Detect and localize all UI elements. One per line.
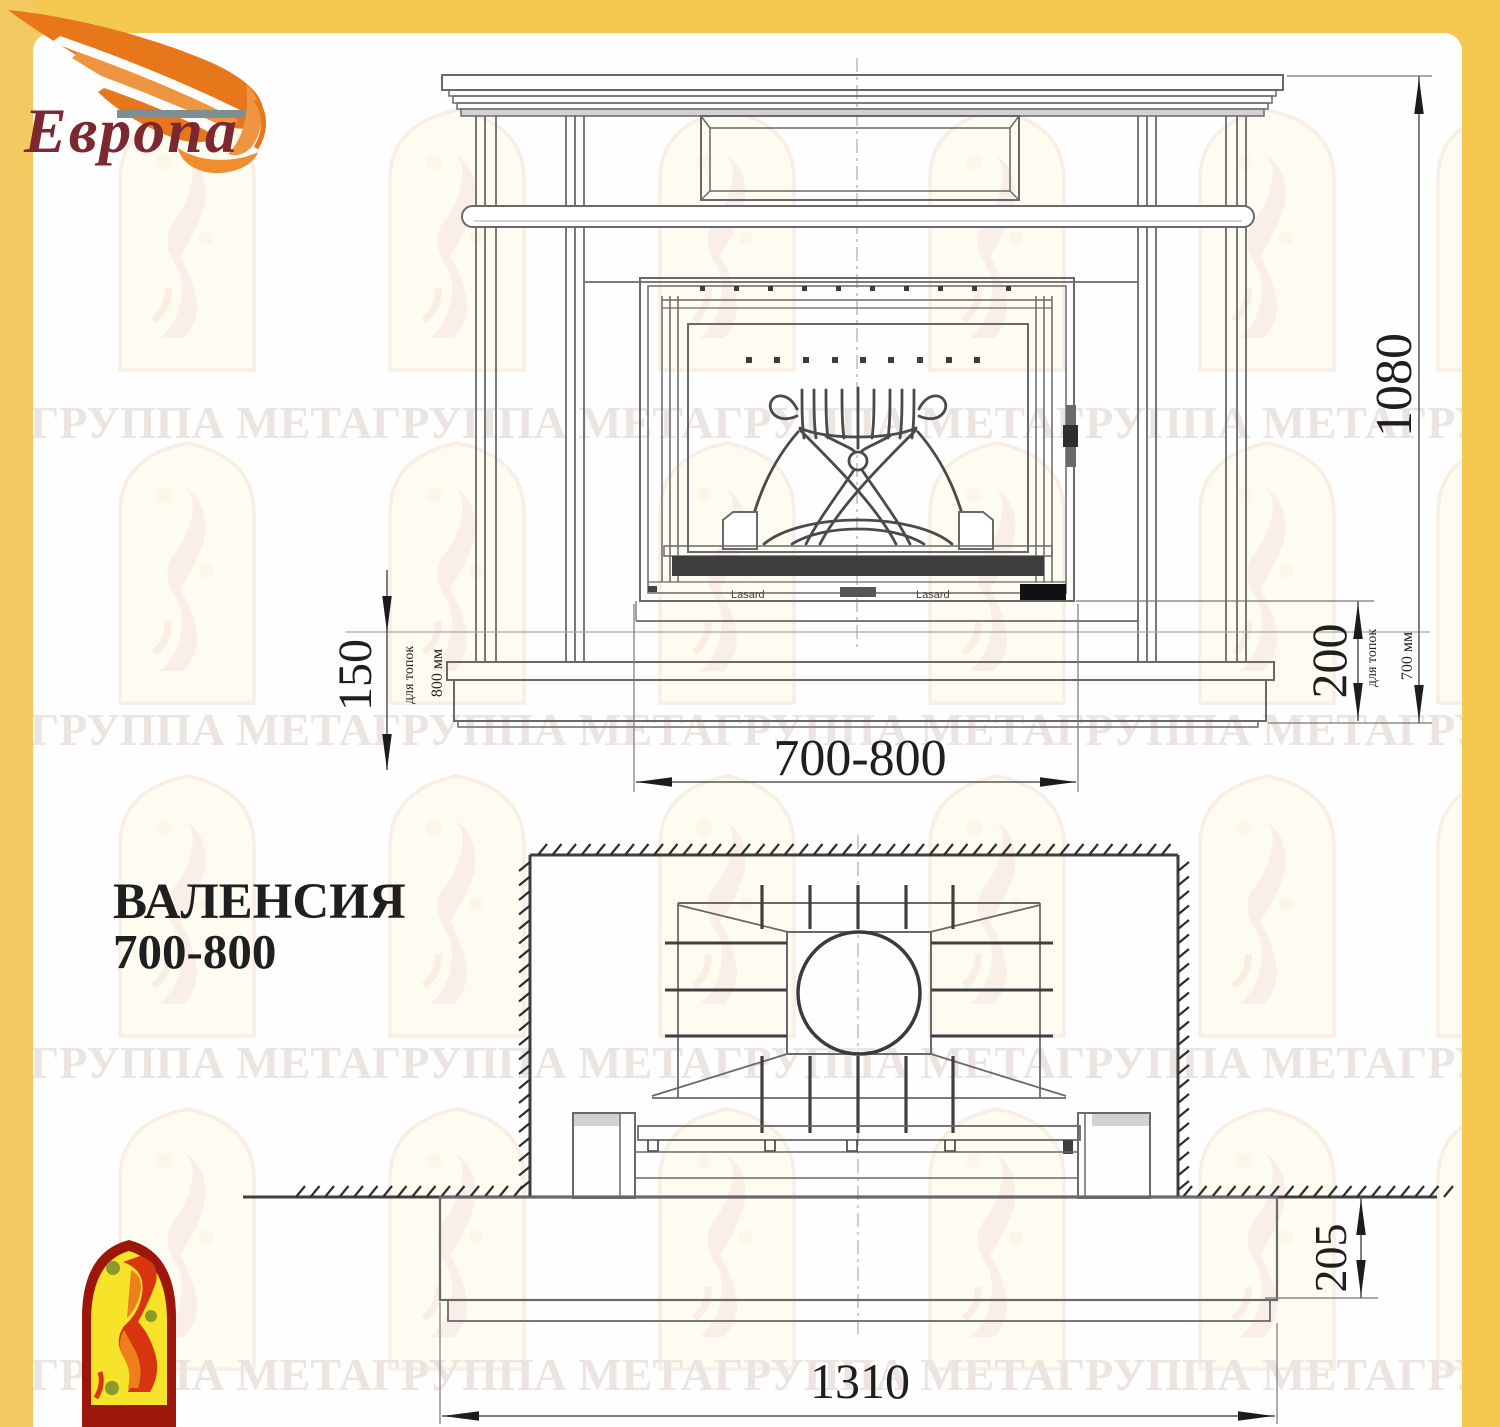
svg-text:1080: 1080 [1366,333,1423,437]
svg-text:700-800: 700-800 [773,730,946,787]
svg-text:Lasard: Lasard [731,589,765,601]
svg-text:ГРУППА МЕТАГРУППА МЕТАГРУППА М: ГРУППА МЕТАГРУППА МЕТАГРУППА МЕТАГРУППА … [30,704,1500,755]
svg-text:700-800: 700-800 [113,924,276,979]
svg-text:205: 205 [1305,1224,1356,1293]
svg-text:800 мм: 800 мм [429,649,446,697]
svg-text:для топок: для топок [1365,629,1380,687]
svg-text:ГРУППА МЕТАГРУППА МЕТАГРУППА М: ГРУППА МЕТАГРУППА МЕТАГРУППА МЕТАГРУППА … [30,397,1500,448]
svg-text:150: 150 [329,639,382,711]
svg-text:ВАЛЕНСИЯ: ВАЛЕНСИЯ [113,874,406,930]
svg-text:для топок: для топок [402,646,417,704]
svg-text:700 мм: 700 мм [1399,632,1416,680]
svg-text:Lasard: Lasard [916,589,950,601]
svg-text:Европа: Европа [23,95,239,166]
svg-text:1310: 1310 [810,1353,910,1409]
svg-text:200: 200 [1301,624,1357,699]
svg-text:ГРУППА МЕТАГРУППА МЕТАГРУППА М: ГРУППА МЕТАГРУППА МЕТАГРУППА МЕТАГРУППА … [30,1349,1500,1400]
svg-text:ГРУППА МЕТАГРУППА МЕТАГРУППА М: ГРУППА МЕТАГРУППА МЕТАГРУППА МЕТАГРУППА … [30,1037,1500,1088]
